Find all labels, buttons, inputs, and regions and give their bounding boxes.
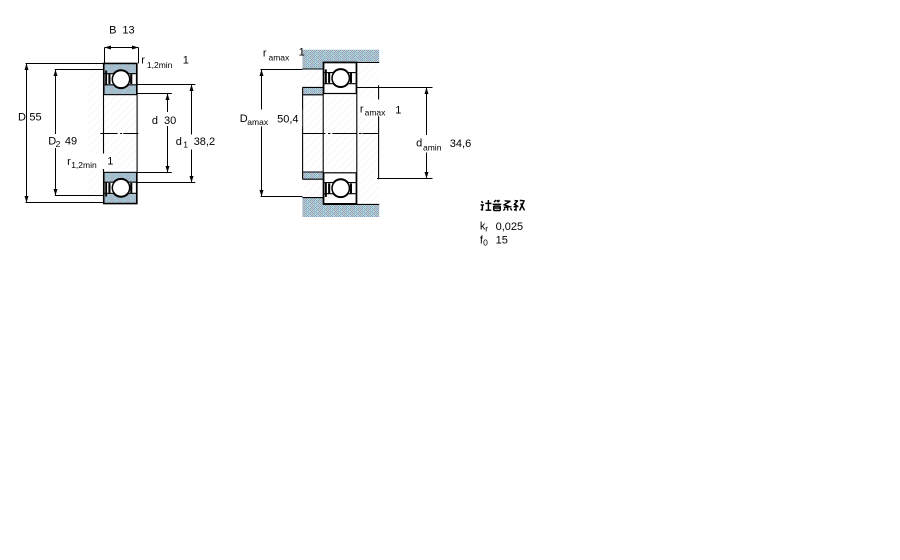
svg-text:13: 13 — [122, 25, 134, 37]
svg-text:d: d — [416, 137, 422, 149]
svg-text:r: r — [360, 104, 364, 116]
svg-text:d: d — [152, 115, 158, 127]
svg-text:2: 2 — [56, 139, 61, 149]
svg-text:1,2min: 1,2min — [147, 60, 173, 70]
svg-text:1: 1 — [107, 155, 113, 167]
svg-text:1: 1 — [183, 54, 189, 66]
svg-text:50,4: 50,4 — [277, 113, 298, 125]
svg-text:1: 1 — [299, 46, 305, 58]
svg-text:0: 0 — [483, 237, 488, 247]
svg-text:D: D — [18, 112, 26, 124]
svg-text:amax: amax — [247, 117, 269, 127]
svg-text:r: r — [141, 55, 145, 67]
svg-text:55: 55 — [29, 112, 41, 124]
svg-text:r: r — [485, 224, 488, 234]
svg-text:d: d — [176, 136, 182, 148]
svg-text:30: 30 — [164, 115, 176, 127]
svg-text:amax: amax — [269, 52, 291, 62]
svg-text:38,2: 38,2 — [194, 136, 215, 148]
svg-text:0,025: 0,025 — [496, 221, 524, 233]
svg-text:15: 15 — [496, 234, 508, 246]
svg-text:B: B — [109, 25, 116, 37]
svg-text:1: 1 — [183, 140, 188, 150]
svg-text:49: 49 — [65, 135, 77, 147]
svg-text:amax: amax — [365, 108, 387, 118]
svg-text:r: r — [263, 47, 267, 59]
svg-text:1,2min: 1,2min — [71, 160, 97, 170]
svg-text:34,6: 34,6 — [450, 138, 471, 150]
svg-text:amin: amin — [423, 143, 442, 153]
svg-text:1: 1 — [395, 105, 401, 117]
